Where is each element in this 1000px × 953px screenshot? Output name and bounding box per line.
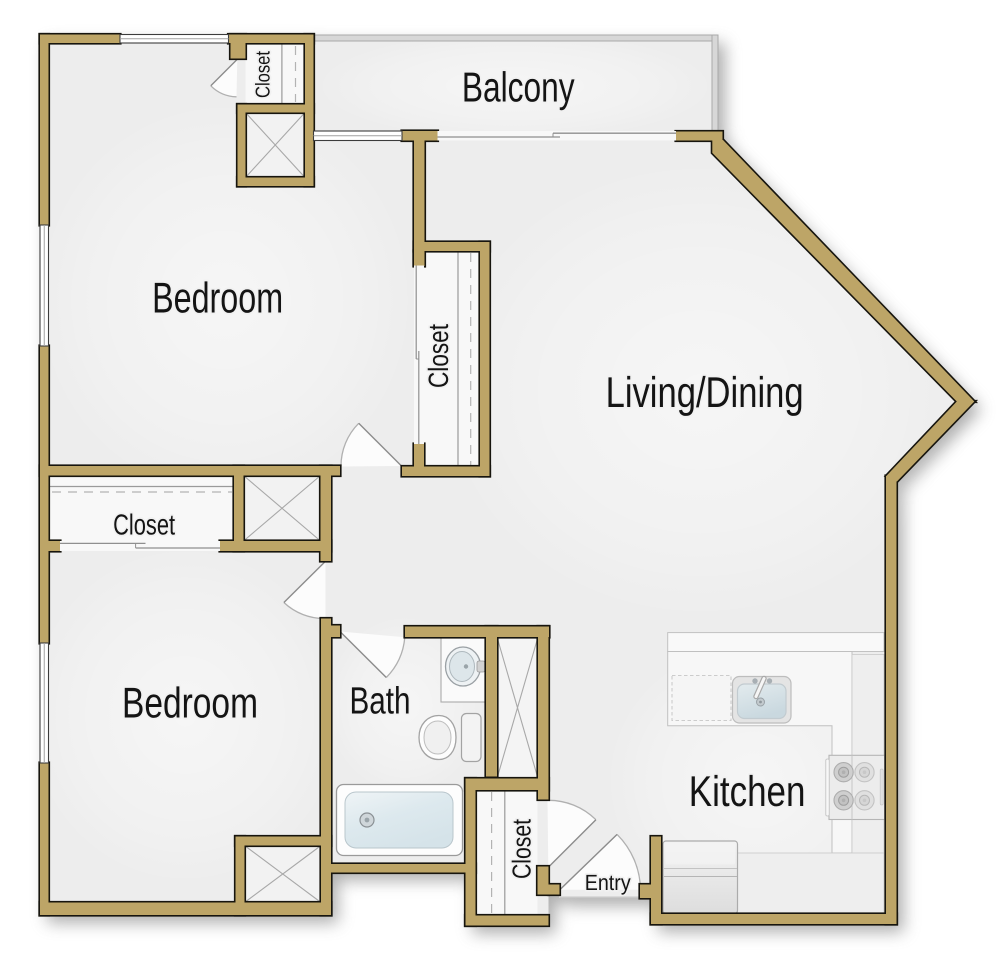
svg-text:Kitchen: Kitchen bbox=[689, 768, 806, 816]
svg-text:Bath: Bath bbox=[350, 680, 411, 722]
svg-text:Bedroom: Bedroom bbox=[152, 274, 283, 322]
svg-text:Closet: Closet bbox=[253, 51, 275, 98]
svg-text:Balcony: Balcony bbox=[462, 63, 575, 110]
svg-text:Living/Dining: Living/Dining bbox=[606, 369, 804, 417]
svg-text:Bedroom: Bedroom bbox=[122, 680, 258, 728]
svg-text:Closet: Closet bbox=[423, 324, 454, 388]
svg-text:Closet: Closet bbox=[113, 510, 175, 542]
svg-text:Closet: Closet bbox=[507, 818, 537, 879]
svg-text:Entry: Entry bbox=[585, 870, 631, 895]
